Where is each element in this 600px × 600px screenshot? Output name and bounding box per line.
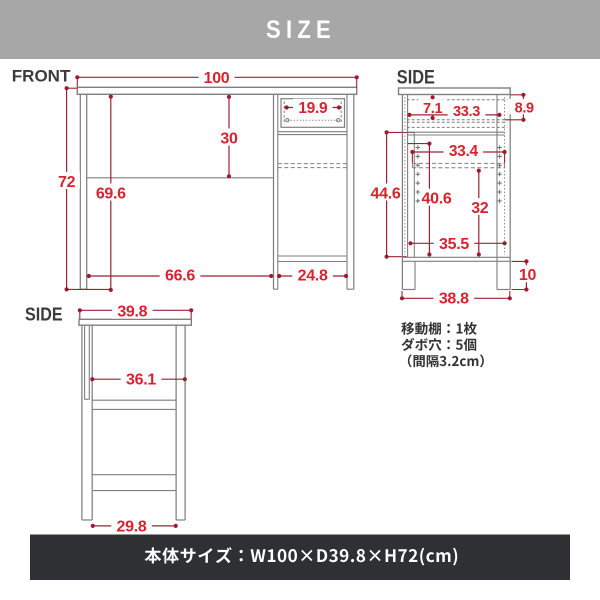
- svg-text:38.8: 38.8: [439, 291, 469, 308]
- svg-text:66.6: 66.6: [165, 268, 195, 285]
- svg-text:36.1: 36.1: [126, 372, 156, 389]
- svg-text:29.8: 29.8: [117, 519, 147, 536]
- svg-text:33.4: 33.4: [449, 143, 479, 160]
- svg-text:39.8: 39.8: [117, 304, 147, 321]
- svg-text:40.6: 40.6: [422, 190, 452, 207]
- svg-text:33.3: 33.3: [453, 104, 480, 120]
- svg-text:FRONT: FRONT: [12, 67, 71, 86]
- svg-text:69.6: 69.6: [96, 185, 126, 202]
- svg-text:SIDE: SIDE: [25, 304, 63, 325]
- svg-text:30: 30: [220, 130, 238, 147]
- svg-text:35.5: 35.5: [439, 236, 469, 253]
- svg-text:19.9: 19.9: [298, 100, 328, 117]
- svg-text:72: 72: [58, 174, 76, 191]
- svg-text:8.9: 8.9: [515, 101, 534, 117]
- svg-text:24.8: 24.8: [298, 268, 328, 285]
- svg-text:100: 100: [204, 70, 230, 87]
- svg-text:SIZE: SIZE: [266, 16, 336, 44]
- svg-text:SIDE: SIDE: [397, 66, 435, 87]
- svg-text:10: 10: [519, 267, 537, 284]
- svg-text:32: 32: [471, 200, 489, 217]
- svg-text:44.6: 44.6: [371, 185, 401, 202]
